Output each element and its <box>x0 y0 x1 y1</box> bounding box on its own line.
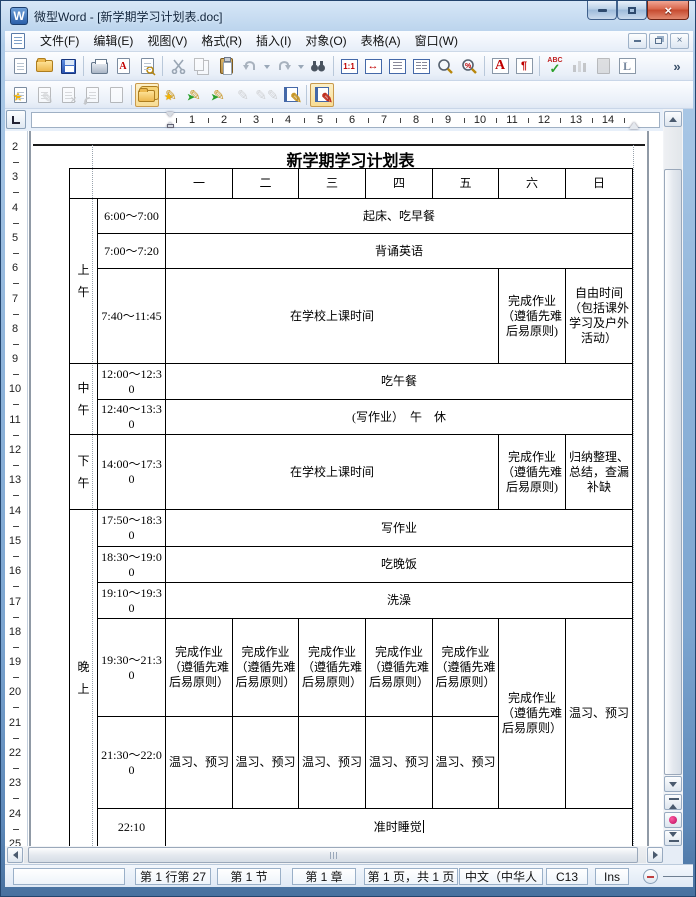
table-cell[interactable]: 吃晚饭 <box>166 547 633 583</box>
horizontal-scroll-thumb[interactable] <box>28 847 638 863</box>
table-cell[interactable]: 背诵英语 <box>166 234 633 269</box>
v-ruler-number: 8 <box>5 323 25 335</box>
fit-width-button[interactable]: ↔ <box>361 54 385 78</box>
time-cell[interactable]: 22:10 <box>98 809 166 847</box>
table-cell[interactable]: 在学校上课时间 <box>166 435 499 510</box>
text-boundary-top <box>33 144 645 146</box>
table-cell[interactable]: 五 <box>433 169 499 199</box>
v-ruler-number: 3 <box>5 171 25 183</box>
status-page-count: 第 1 页，共 1 页 <box>364 868 458 885</box>
arrow-up-icon <box>669 113 677 122</box>
period-cell[interactable]: 下午 <box>70 435 98 510</box>
h-ruler-tick <box>368 118 369 123</box>
v-ruler-number: 2 <box>5 141 25 153</box>
notebook-pencil-icon: ✎ <box>284 87 298 102</box>
menu-item-5[interactable]: 对象(O) <box>298 32 353 50</box>
spell-check-button[interactable]: ABC✓ <box>543 54 567 78</box>
menu-item-1[interactable]: 编辑(E) <box>86 32 140 50</box>
two-pages-icon <box>413 59 430 74</box>
cut-button[interactable] <box>166 54 190 78</box>
table-cell[interactable]: (写作业） 午 休 <box>166 400 633 435</box>
v-ruler-tick <box>13 586 19 587</box>
statistics-button[interactable] <box>567 54 591 78</box>
table-cell[interactable]: 三 <box>299 169 366 199</box>
v-ruler-number: 13 <box>5 474 25 486</box>
v-ruler-tick <box>13 283 19 284</box>
table-cell[interactable] <box>70 169 166 199</box>
letter-l-button[interactable]: L <box>615 54 639 78</box>
table-row: 19:10～19:30洗澡 <box>70 583 633 619</box>
page-undo-icon <box>86 87 99 103</box>
pencil-reject-icon: ✎ <box>237 88 249 102</box>
document-area: 2345678910111213141516171819202122232425… <box>5 131 663 846</box>
toolbar-separator <box>484 56 485 76</box>
scroll-up-button[interactable] <box>664 111 682 127</box>
svg-text:%: % <box>465 63 472 70</box>
menu-item-6[interactable]: 表格(A) <box>354 32 408 50</box>
edit-star-button[interactable]: ★✎ <box>159 83 183 107</box>
pdf-icon: A <box>117 58 130 74</box>
toolbar-separator <box>83 56 84 76</box>
v-ruler-tick <box>13 192 19 193</box>
table-cell[interactable]: 完成作业（遵循先难后易原则） <box>166 619 233 717</box>
save-button[interactable] <box>56 54 80 78</box>
new-starred-document-button[interactable]: ★ <box>8 83 32 107</box>
blank-document-button[interactable] <box>104 83 128 107</box>
h-ruler-tick <box>336 118 337 123</box>
zoom-slider-track[interactable] <box>663 876 693 877</box>
save-icon <box>61 59 76 74</box>
ruler-row: 1234567891011121314 <box>5 109 663 131</box>
page[interactable]: 新学期学习计划表 一二三四五六日上午6:00～7:00起床、吃早餐7:00～7:… <box>31 131 647 846</box>
h-ruler-tick <box>624 118 625 123</box>
status-bar: 第 1 行第 27 第 1 节 第 1 章 第 1 页，共 1 页 中文（中华人… <box>5 864 693 887</box>
table-row: 22:10准时睡觉 <box>70 809 633 847</box>
table-cell[interactable]: 准时睡觉 <box>166 809 633 847</box>
time-cell[interactable]: 7:00～7:20 <box>98 234 166 269</box>
title-bar[interactable]: W 微型Word - [新学期学习计划表.doc] × <box>1 1 696 31</box>
double-up-icon <box>669 800 677 809</box>
toolbar-separator <box>306 85 307 105</box>
table-cell[interactable]: 写作业 <box>166 510 633 547</box>
next-page-button[interactable] <box>664 830 682 846</box>
v-ruler-number: 18 <box>5 626 25 638</box>
menu-item-2[interactable]: 视图(V) <box>140 32 194 50</box>
paragraph-icon: ¶ <box>516 58 533 74</box>
h-ruler-number: 3 <box>246 114 266 126</box>
time-cell[interactable]: 12:40～13:30 <box>98 400 166 435</box>
page-delete-icon: × <box>62 87 75 103</box>
v-ruler-number: 17 <box>5 596 25 608</box>
table-row: 一二三四五六日 <box>70 169 633 199</box>
redo-button[interactable] <box>272 54 296 78</box>
h-ruler-tick <box>496 118 497 123</box>
h-ruler-tick <box>528 118 529 123</box>
v-ruler-tick <box>13 798 19 799</box>
table-cell[interactable]: 完成作业（遵循先难后易原则） <box>299 619 366 717</box>
v-ruler-number: 11 <box>5 414 25 426</box>
h-ruler-number: 10 <box>470 114 490 126</box>
print-icon <box>91 62 108 74</box>
window-title: 微型Word - [新学期学习计划表.doc] <box>34 8 222 25</box>
arrow-down-icon <box>669 782 677 791</box>
restore-button[interactable] <box>617 1 647 20</box>
folder-stack-icon <box>138 90 155 102</box>
close-icon: × <box>664 4 672 17</box>
revert-document-button[interactable] <box>80 83 104 107</box>
v-ruler-tick <box>13 223 19 224</box>
toolbar-separator <box>539 56 540 76</box>
v-ruler-number: 6 <box>5 262 25 274</box>
v-ruler-number: 21 <box>5 717 25 729</box>
v-ruler-number: 16 <box>5 565 25 577</box>
standard-toolbar: A 1:1 ↔ % A ¶ ABC✓ L » <box>5 52 693 81</box>
paragraph-settings-button[interactable]: ¶ <box>512 54 536 78</box>
scroll-right-button[interactable] <box>647 847 663 863</box>
open-folder-icon <box>36 60 53 72</box>
table-cell[interactable]: 归纳整理、总结，查漏补缺 <box>566 435 633 510</box>
print-preview-icon <box>141 58 154 74</box>
h-ruler-number: 8 <box>406 114 426 126</box>
page-star-icon: ★ <box>14 87 27 103</box>
edit-reject-all-button[interactable]: ✎✎ <box>255 83 279 107</box>
table-cell[interactable]: 完成作业（遵循先难后易原则） <box>433 619 499 717</box>
pencil-reject-all-icon: ✎✎ <box>255 88 278 102</box>
bar-icon <box>669 840 679 842</box>
time-cell[interactable]: 14:00～17:30 <box>98 435 166 510</box>
h-ruler-tick <box>240 118 241 123</box>
grip-icon <box>333 852 334 859</box>
table-row: 7:00～7:20背诵英语 <box>70 234 633 269</box>
v-ruler-number: 20 <box>5 686 25 698</box>
h-ruler-tick <box>272 118 273 123</box>
v-ruler-tick <box>13 556 19 557</box>
v-ruler-number: 12 <box>5 444 25 456</box>
v-ruler-number: 7 <box>5 293 25 305</box>
restore-icon <box>628 7 636 14</box>
status-section: 第 1 节 <box>217 868 281 885</box>
table-cell[interactable]: 在学校上课时间 <box>166 269 499 364</box>
v-ruler-tick <box>13 314 19 315</box>
v-ruler-number: 15 <box>5 535 25 547</box>
v-ruler-tick <box>13 677 19 678</box>
h-ruler-number: 9 <box>438 114 458 126</box>
tab-left-icon <box>12 116 20 124</box>
copy-button[interactable] <box>190 54 214 78</box>
redo-icon <box>276 59 292 73</box>
zoom-out-button[interactable] <box>643 869 658 884</box>
grip-icon <box>330 852 331 859</box>
one-page-icon <box>389 59 406 74</box>
v-ruler-tick <box>13 647 19 648</box>
open-button[interactable] <box>32 54 56 78</box>
print-button[interactable] <box>87 54 111 78</box>
period-cell[interactable]: 晚上 <box>70 510 98 847</box>
v-ruler-number: 25 <box>5 838 25 846</box>
left-indent-marker[interactable] <box>167 124 174 128</box>
new-document-icon <box>14 58 27 74</box>
table-row: 19:30～21:30完成作业（遵循先难后易原则）完成作业（遵循先难后易原则）完… <box>70 619 633 717</box>
h-ruler-tick <box>400 118 401 123</box>
v-ruler-number: 24 <box>5 808 25 820</box>
vertical-scroll-thumb[interactable] <box>664 169 682 775</box>
redo-dropdown[interactable] <box>296 55 306 77</box>
delete-document-button[interactable]: × <box>56 83 80 107</box>
undo-dropdown[interactable] <box>262 55 272 77</box>
page-right-edge <box>647 131 649 846</box>
copy-icon <box>194 58 204 71</box>
h-ruler-number: 6 <box>342 114 362 126</box>
paste-button[interactable] <box>214 54 238 78</box>
table-cell[interactable]: 完成作业（遵循先难后易原则） <box>499 619 566 809</box>
zoom-100-icon: 1:1 <box>341 59 358 74</box>
undo-button[interactable] <box>238 54 262 78</box>
review-notebook-button[interactable]: ✎ <box>279 83 303 107</box>
horizontal-scrollbar[interactable] <box>5 846 663 864</box>
table-cell[interactable]: 温习、预习 <box>166 717 233 809</box>
v-ruler-tick <box>13 617 19 618</box>
status-insert-mode[interactable]: Ins <box>595 868 629 885</box>
app-icon: W <box>10 7 28 25</box>
toolbar-separator <box>162 56 163 76</box>
doc-restore-icon <box>655 38 662 44</box>
v-ruler-number: 19 <box>5 656 25 668</box>
v-ruler-number: 5 <box>5 232 25 244</box>
v-ruler-number: 10 <box>5 383 25 395</box>
table-row: 中午12:00～12:30吃午餐 <box>70 364 633 400</box>
arrow-left-icon <box>9 851 18 859</box>
h-ruler-tick <box>432 118 433 123</box>
schedule-table: 一二三四五六日上午6:00～7:00起床、吃早餐7:00～7:20背诵英语7:4… <box>69 168 633 846</box>
h-ruler-tick <box>592 118 593 123</box>
font-color-icon: A <box>492 58 509 74</box>
table-row: 18:30～19:00吃晚饭 <box>70 547 633 583</box>
time-cell[interactable]: 17:50～18:30 <box>98 510 166 547</box>
horizontal-ruler[interactable]: 1234567891011121314 <box>31 112 660 128</box>
table-cell[interactable]: 六 <box>499 169 566 199</box>
doc-close-button[interactable]: × <box>670 33 689 49</box>
page-layout-icon <box>597 58 610 74</box>
status-language: 中文（中华人 <box>459 868 543 885</box>
v-ruler-tick <box>13 162 19 163</box>
right-margin-guide <box>633 145 634 846</box>
minus-icon <box>647 876 654 878</box>
blank-page-icon <box>110 87 123 103</box>
menu-item-4[interactable]: 插入(I) <box>249 32 298 50</box>
letter-l-icon: L <box>619 58 636 74</box>
table-cell[interactable]: 二 <box>233 169 299 199</box>
zoom-percent-button[interactable]: % <box>457 54 481 78</box>
magnifier-percent-icon: % <box>461 58 478 75</box>
v-ruler-tick <box>13 253 19 254</box>
edit-accept-all-button[interactable]: ➤✎ <box>207 83 231 107</box>
v-ruler-tick <box>13 738 19 739</box>
new-document-button[interactable] <box>8 54 32 78</box>
zoom-in-button[interactable] <box>433 54 457 78</box>
h-ruler-number: 2 <box>214 114 234 126</box>
time-cell[interactable]: 18:30～19:00 <box>98 547 166 583</box>
period-cell[interactable]: 中午 <box>70 364 98 435</box>
two-pages-button[interactable] <box>409 54 433 78</box>
fit-width-icon: ↔ <box>365 59 382 74</box>
h-ruler-number: 1 <box>182 114 202 126</box>
h-ruler-tick <box>176 118 177 123</box>
v-ruler-number: 23 <box>5 777 25 789</box>
table-cell[interactable]: 日 <box>566 169 633 199</box>
time-cell[interactable]: 6:00～7:00 <box>98 199 166 234</box>
window-frame: W 微型Word - [新学期学习计划表.doc] × 文件(F)编辑(E)视图… <box>0 0 696 897</box>
table-cell[interactable]: 温习、预习 <box>299 717 366 809</box>
table-cell[interactable]: 起床、吃早餐 <box>166 199 633 234</box>
doc-minimize-button[interactable] <box>628 33 647 49</box>
pencil-accept-icon: ➤✎ <box>189 88 201 102</box>
time-cell[interactable]: 19:10～19:30 <box>98 583 166 619</box>
close-button[interactable]: × <box>647 1 689 20</box>
status-empty-box <box>13 868 125 885</box>
h-ruler-number: 13 <box>566 114 586 126</box>
time-cell[interactable]: 21:30～22:00 <box>98 717 166 809</box>
menu-item-7[interactable]: 窗口(W) <box>408 32 465 50</box>
paste-icon <box>220 58 233 74</box>
grip-icon <box>336 852 337 859</box>
toolbar-overflow-button[interactable]: » <box>665 54 689 78</box>
time-cell[interactable]: 19:30～21:30 <box>98 619 166 717</box>
undo-icon <box>242 59 258 73</box>
v-ruler-tick <box>13 344 19 345</box>
right-indent-marker[interactable] <box>629 117 639 129</box>
table-row: 晚上17:50～18:30写作业 <box>70 510 633 547</box>
table-row: 12:40～13:30(写作业） 午 休 <box>70 400 633 435</box>
statistics-icon <box>572 59 587 73</box>
h-ruler-number: 7 <box>374 114 394 126</box>
browse-dot-icon <box>669 816 677 824</box>
vertical-scrollbar[interactable] <box>663 109 683 846</box>
text-cursor <box>423 820 425 833</box>
table-cell[interactable]: 四 <box>366 169 433 199</box>
v-ruler-tick <box>13 495 19 496</box>
table-cell[interactable]: 吃午餐 <box>166 364 633 400</box>
review-pane-button[interactable]: ✎ <box>310 83 334 107</box>
h-ruler-tick <box>208 118 209 123</box>
table-cell[interactable]: 完成作业（遵循先难后易原则) <box>499 269 566 364</box>
doc-restore-button[interactable] <box>649 33 668 49</box>
time-cell[interactable]: 7:40～11:45 <box>98 269 166 364</box>
table-row: 7:40～11:45在学校上课时间完成作业（遵循先难后易原则)自由时间（包括课外… <box>70 269 633 364</box>
edit-accept-button[interactable]: ➤✎ <box>183 83 207 107</box>
status-cell-ref: C13 <box>546 868 588 885</box>
minimize-button[interactable] <box>587 1 617 20</box>
edit-reject-button[interactable]: ✎ <box>231 83 255 107</box>
minimize-icon <box>598 9 607 12</box>
v-ruler-tick <box>13 707 19 708</box>
toolbar-separator <box>333 56 334 76</box>
print-preview-button[interactable] <box>135 54 159 78</box>
table-cell[interactable]: 完成作业（遵循先难后易原则） <box>366 619 433 717</box>
v-ruler-number: 14 <box>5 505 25 517</box>
notebook-red-pencil-icon: ✎ <box>315 87 329 102</box>
v-ruler-tick <box>13 435 19 436</box>
toolbar-separator <box>131 85 132 105</box>
table-row: 上午6:00～7:00起床、吃早餐 <box>70 199 633 234</box>
table-cell[interactable]: 温习、预习 <box>233 717 299 809</box>
pencil-accept-all-icon: ➤✎ <box>213 88 225 102</box>
v-ruler-tick <box>13 465 19 466</box>
pencil-star-icon: ★✎ <box>165 88 177 102</box>
page-layout-button[interactable] <box>591 54 615 78</box>
menu-item-3[interactable]: 格式(R) <box>194 32 249 50</box>
table-cell[interactable]: 完成作业（遵循先难后易原则） <box>233 619 299 717</box>
h-ruler-number: 11 <box>502 114 522 126</box>
table-cell[interactable]: 温习、预习 <box>566 619 633 809</box>
period-cell[interactable]: 上午 <box>70 199 98 364</box>
h-ruler-tick <box>304 118 305 123</box>
tab-stop-selector[interactable] <box>6 110 26 129</box>
status-line-column: 第 1 行第 27 <box>135 868 211 885</box>
v-ruler-tick <box>13 768 19 769</box>
horizontal-scroll-track[interactable] <box>24 847 646 863</box>
h-ruler-number: 12 <box>534 114 554 126</box>
h-ruler-number: 5 <box>310 114 330 126</box>
bar-icon <box>669 798 679 800</box>
copy-pages-button[interactable] <box>135 83 159 107</box>
table-cell[interactable]: 完成作业（遵循先难后易原则) <box>499 435 566 510</box>
h-ruler-tick <box>560 118 561 123</box>
table-row: 下午14:00～17:30在学校上课时间完成作业（遵循先难后易原则)归纳整理、总… <box>70 435 633 510</box>
table-cell[interactable]: 洗澡 <box>166 583 633 619</box>
scrollbar-corner <box>663 846 683 864</box>
time-cell[interactable]: 12:00～12:30 <box>98 364 166 400</box>
find-button[interactable] <box>306 54 330 78</box>
table-cell[interactable]: 自由时间（包括课外学习及户外活动） <box>566 269 633 364</box>
h-ruler-tick <box>464 118 465 123</box>
export-pdf-button[interactable]: A <box>111 54 135 78</box>
v-ruler-tick <box>13 374 19 375</box>
scissors-icon <box>171 59 186 74</box>
vertical-ruler[interactable]: 2345678910111213141516171819202122232425 <box>5 131 28 846</box>
chevron-overflow-icon: » <box>673 59 680 74</box>
doc-minimize-icon <box>634 40 641 42</box>
scroll-left-button[interactable] <box>7 847 23 863</box>
h-ruler-number: 4 <box>278 114 298 126</box>
v-ruler-number: 22 <box>5 747 25 759</box>
menu-item-0[interactable]: 文件(F) <box>33 32 86 50</box>
scroll-down-button[interactable] <box>664 776 682 792</box>
v-ruler-number: 9 <box>5 353 25 365</box>
zoom-100-button[interactable]: 1:1 <box>337 54 361 78</box>
table-cell[interactable]: 一 <box>166 169 233 199</box>
magnifier-icon <box>437 58 454 75</box>
status-chapter: 第 1 章 <box>292 868 356 885</box>
v-ruler-tick <box>13 829 19 830</box>
v-ruler-tick <box>13 526 19 527</box>
v-ruler-number: 4 <box>5 202 25 214</box>
edit-document-button[interactable]: ✎ <box>32 83 56 107</box>
arrow-right-icon <box>653 851 662 859</box>
v-ruler-tick <box>13 404 19 405</box>
document-icon[interactable] <box>11 33 25 49</box>
h-ruler-number: 14 <box>598 114 618 126</box>
font-color-button[interactable]: A <box>488 54 512 78</box>
secondary-toolbar: ★ ✎ × ★✎ ➤✎ ➤✎ ✎ ✎✎ ✎ ✎ <box>5 81 693 109</box>
binoculars-icon <box>310 59 326 73</box>
table-cell[interactable]: 温习、预习 <box>366 717 433 809</box>
select-browse-object-button[interactable] <box>664 812 682 828</box>
spell-check-icon: ABC✓ <box>547 57 562 75</box>
previous-page-button[interactable] <box>664 794 682 810</box>
page-pencil-icon: ✎ <box>38 87 51 103</box>
one-page-button[interactable] <box>385 54 409 78</box>
table-cell[interactable]: 温习、预习 <box>433 717 499 809</box>
